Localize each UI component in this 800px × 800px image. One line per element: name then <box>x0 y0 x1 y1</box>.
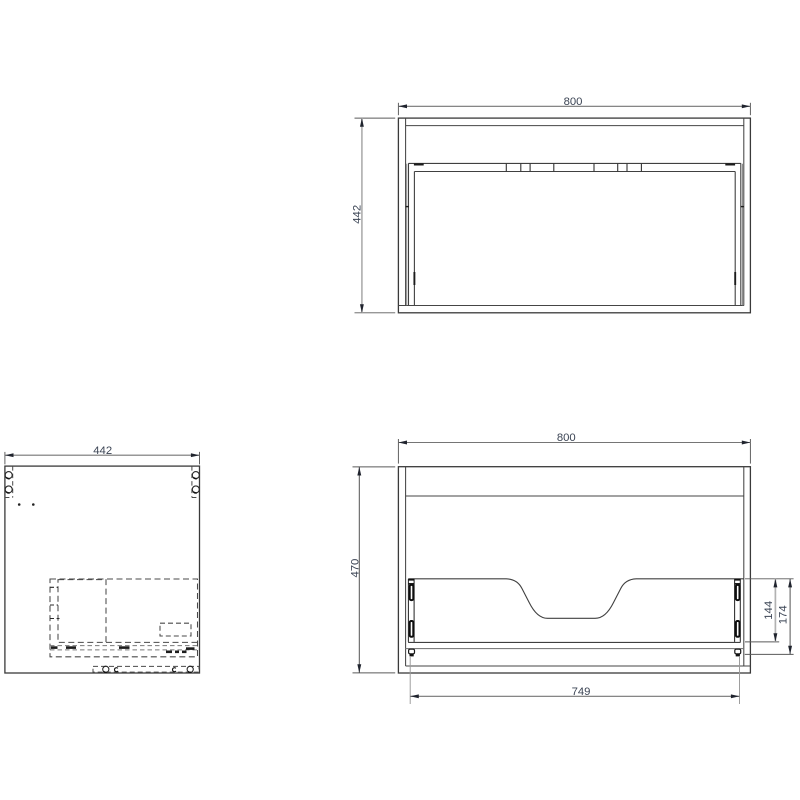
svg-text:174: 174 <box>777 605 789 624</box>
svg-text:442: 442 <box>93 445 112 457</box>
svg-text:470: 470 <box>349 559 361 578</box>
svg-text:800: 800 <box>564 96 583 108</box>
svg-text:144: 144 <box>763 601 775 620</box>
svg-text:749: 749 <box>572 686 591 698</box>
svg-text:442: 442 <box>352 205 364 224</box>
svg-text:800: 800 <box>557 432 576 444</box>
